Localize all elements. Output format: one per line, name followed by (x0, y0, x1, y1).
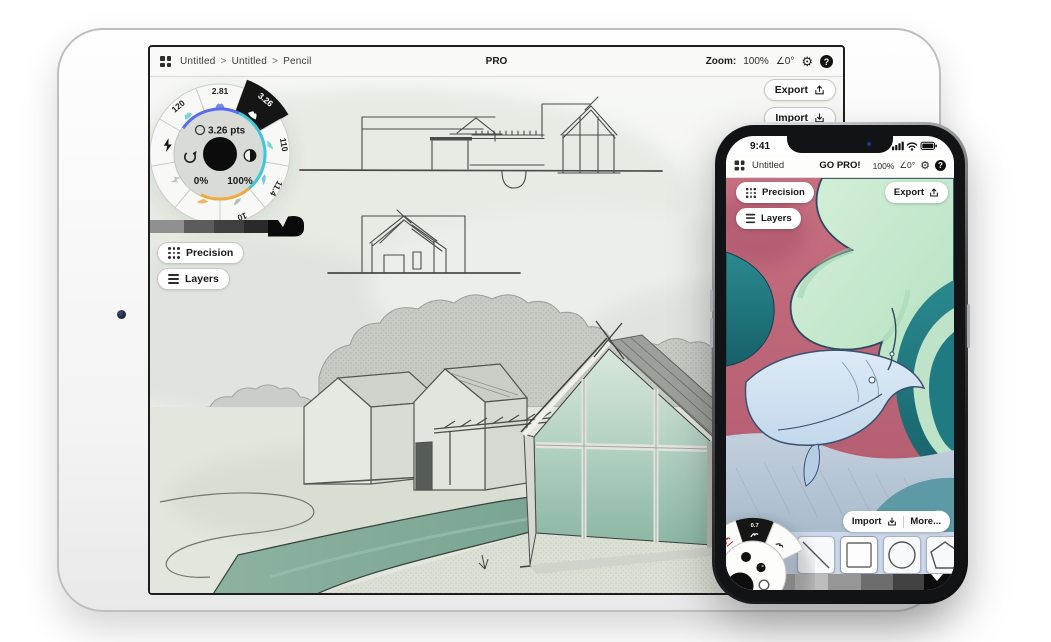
square-shape-tile[interactable] (840, 536, 878, 574)
layers-icon (168, 274, 179, 285)
ipad-camera (117, 310, 126, 319)
front-camera (867, 142, 871, 146)
breadcrumb-drawing[interactable]: Untitled (232, 56, 268, 67)
precision-grid-icon (168, 247, 180, 259)
precision-button[interactable]: Precision (157, 242, 244, 264)
angle-value[interactable]: ∠0° (776, 56, 795, 67)
color-puck[interactable] (203, 137, 237, 171)
square-shape-icon (841, 537, 877, 573)
layers-icon (746, 214, 755, 223)
mini-wheel-label: 0.7 (751, 523, 759, 529)
settings-gear-icon[interactable]: ⚙ (920, 159, 930, 172)
whale-illustration (726, 178, 954, 532)
wifi-icon (908, 143, 917, 147)
breadcrumb-separator: > (272, 56, 278, 67)
zoom-value[interactable]: 100% (873, 161, 895, 171)
zoom-value[interactable]: 100% (743, 56, 769, 67)
breadcrumb-project[interactable]: Untitled (180, 56, 216, 67)
breadcrumb[interactable]: Untitled > Untitled > Pencil (180, 56, 312, 67)
precision-label: Precision (186, 247, 233, 259)
power-button (967, 304, 970, 348)
help-icon[interactable]: ? (820, 55, 833, 68)
gallery-grid-icon[interactable] (160, 56, 171, 67)
settings-gear-icon[interactable]: ⚙ (801, 55, 813, 68)
more-button[interactable]: More... (910, 516, 941, 527)
status-icons (892, 140, 938, 152)
precision-grid-icon (746, 187, 756, 197)
mini-tool-wheel[interactable]: 0.2 0.7 (726, 512, 815, 590)
size-dot-small[interactable] (756, 563, 765, 572)
signal-icon (892, 142, 904, 151)
document-title[interactable]: Untitled (752, 160, 784, 171)
export-label: Export (775, 84, 808, 96)
size-dot-large[interactable] (741, 552, 751, 562)
volume-down-button (710, 318, 713, 348)
volume-up-button (710, 290, 713, 312)
import-more-bar: Import More... (843, 511, 950, 532)
notch (787, 136, 893, 153)
contrast-icon[interactable] (244, 150, 256, 162)
iphone-device: 9:41 (712, 122, 968, 604)
whale-eye (869, 377, 875, 383)
export-icon (814, 85, 825, 96)
divider (903, 516, 904, 528)
screenshot-stage: Untitled > Untitled > Pencil PRO Zoom: 1… (0, 0, 1051, 642)
pentagon-shape-tile[interactable] (926, 536, 954, 574)
pentagon-shape-icon (927, 537, 954, 573)
precision-button[interactable]: Precision (736, 182, 814, 203)
layers-label: Layers (761, 213, 792, 224)
wheel-opacity-left: 0% (194, 176, 209, 187)
export-icon (929, 188, 939, 198)
circle-shape-icon (884, 537, 920, 573)
layers-button[interactable]: Layers (157, 268, 230, 290)
gallery-grid-icon[interactable] (735, 161, 745, 171)
status-time: 9:41 (750, 141, 770, 152)
iphone-screen: 9:41 (726, 136, 954, 590)
iphone-toolbar: Untitled GO PRO! 100% ∠0° ⚙ ? (726, 154, 954, 178)
export-label: Export (894, 187, 924, 198)
wheel-size-value: 3.26 pts (208, 126, 246, 137)
layers-button[interactable]: Layers (736, 208, 801, 229)
precision-label: Precision (762, 187, 805, 198)
battery-icon (921, 142, 937, 149)
export-button[interactable]: Export (764, 79, 836, 101)
zoom-label: Zoom: (706, 56, 737, 67)
breadcrumb-separator: > (221, 56, 227, 67)
brush-preview-blob (268, 216, 304, 237)
angle-value[interactable]: ∠0° (899, 160, 915, 171)
import-icon (887, 517, 897, 527)
circle-shape-tile[interactable] (883, 536, 921, 574)
import-button[interactable]: Import (852, 516, 882, 527)
layers-label: Layers (185, 273, 219, 285)
breadcrumb-tool[interactable]: Pencil (283, 56, 311, 67)
grayscale-value-bar[interactable] (150, 213, 306, 241)
wheel-opacity-right: 100% (227, 176, 253, 187)
svg-text:2.81: 2.81 (212, 86, 229, 96)
export-button[interactable]: Export (885, 182, 948, 203)
help-icon[interactable]: ? (935, 160, 946, 171)
